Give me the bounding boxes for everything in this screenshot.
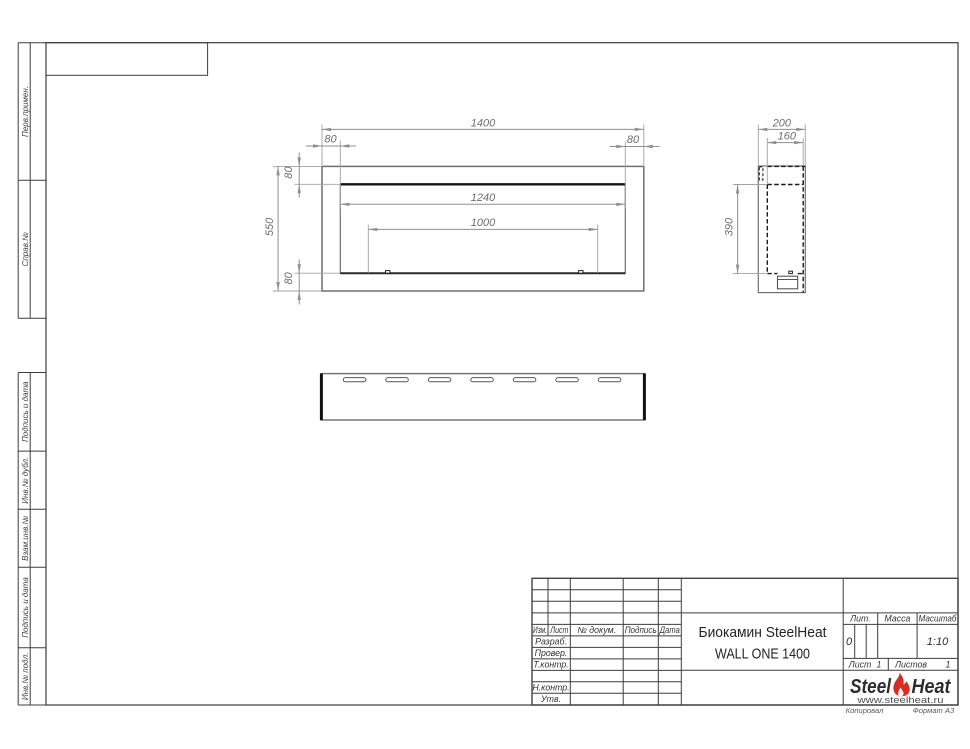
- svg-text:Лит.: Лит.: [849, 614, 871, 624]
- svg-text:WALL ONE 1400: WALL ONE 1400: [715, 646, 810, 663]
- svg-text:Подпись и дата: Подпись и дата: [21, 577, 30, 638]
- svg-text:Лист: Лист: [550, 625, 569, 635]
- svg-text:1240: 1240: [471, 192, 496, 204]
- svg-text:1:10: 1:10: [927, 636, 949, 648]
- svg-text:1000: 1000: [471, 217, 496, 229]
- svg-text:390: 390: [724, 217, 736, 236]
- svg-text:Инв.№ дубл.: Инв.№ дубл.: [21, 457, 30, 504]
- svg-text:550: 550: [264, 217, 276, 236]
- svg-text:1: 1: [946, 659, 951, 669]
- svg-text:80: 80: [283, 166, 295, 179]
- svg-text:1: 1: [877, 659, 882, 669]
- svg-text:Утв.: Утв.: [540, 694, 561, 704]
- svg-text:1400: 1400: [471, 118, 496, 130]
- svg-text:160: 160: [778, 130, 797, 142]
- svg-text:Перв.примен.: Перв.примен.: [21, 86, 30, 137]
- svg-text:Копировал: Копировал: [846, 706, 884, 715]
- svg-text:Провер.: Провер.: [535, 648, 568, 658]
- svg-text:Разраб.: Разраб.: [535, 637, 567, 647]
- svg-text:№ докум.: № докум.: [577, 625, 616, 635]
- svg-text:80: 80: [627, 134, 640, 146]
- svg-text:Масштаб: Масштаб: [919, 614, 958, 624]
- svg-text:80: 80: [283, 271, 295, 284]
- svg-text:Биокамин SteelHeat: Биокамин SteelHeat: [699, 624, 828, 641]
- svg-text:Т.контр.: Т.контр.: [533, 660, 569, 670]
- svg-text:0: 0: [846, 636, 853, 648]
- svg-text:Лист: Лист: [848, 659, 872, 669]
- svg-text:Формат А3: Формат А3: [913, 706, 955, 715]
- svg-text:200: 200: [772, 117, 792, 129]
- svg-text:Подпись: Подпись: [625, 625, 657, 635]
- svg-text:Дата: Дата: [659, 625, 680, 635]
- svg-text:Изм.: Изм.: [533, 625, 547, 635]
- svg-text:80: 80: [324, 134, 337, 146]
- svg-text:Н.контр.: Н.контр.: [532, 682, 569, 692]
- svg-text:Справ.№: Справ.№: [21, 232, 30, 266]
- svg-text:Масса: Масса: [884, 614, 910, 624]
- svg-text:Листов: Листов: [894, 659, 927, 669]
- svg-text:Инв.№ подл.: Инв.№ подл.: [21, 653, 30, 700]
- svg-text:Подпись и дата: Подпись и дата: [21, 381, 30, 442]
- svg-text:www.steelheat.ru: www.steelheat.ru: [856, 695, 943, 706]
- svg-text:Взам.инв.№: Взам.инв.№: [21, 515, 30, 560]
